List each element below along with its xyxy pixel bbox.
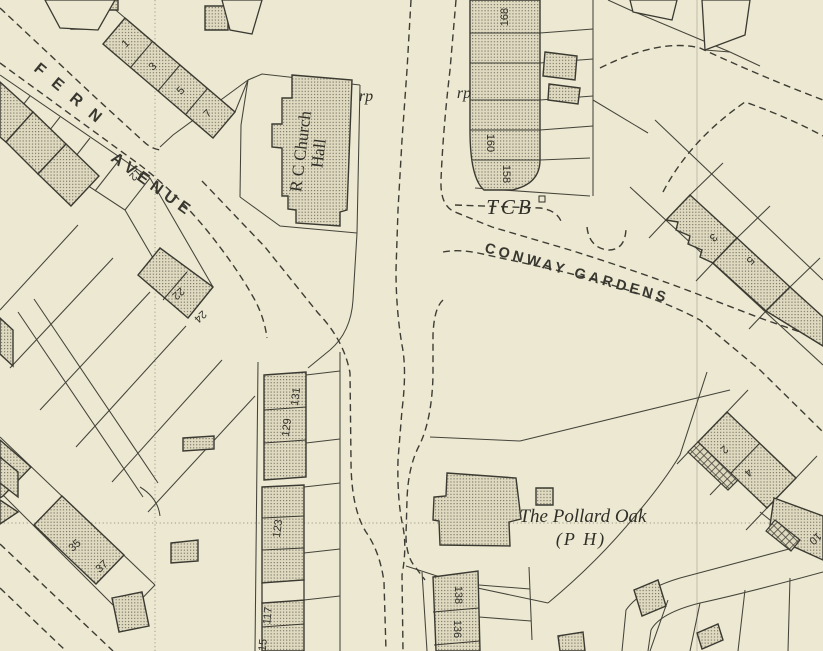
pub-type-label: (P H)	[556, 529, 606, 550]
os-map-sheet: FERN AVENUE CONWAY GARDENS R C Church Ha…	[0, 0, 823, 651]
house-number: 158	[500, 165, 512, 183]
building-terrace-158-168	[470, 0, 540, 190]
pub-name-label: The Pollard Oak	[519, 506, 647, 527]
building-outbuilding	[558, 632, 585, 651]
rp-marker-east: rp	[457, 85, 471, 102]
os-map-canvas: FERN AVENUE CONWAY GARDENS R C Church Ha…	[0, 0, 823, 651]
house-number: 131	[289, 387, 303, 407]
house-number: 123	[271, 519, 285, 539]
house-number: 129	[280, 418, 294, 438]
house-number: 160	[484, 134, 496, 152]
tcb-marker-label: TCB	[486, 195, 534, 219]
building-outbuilding	[536, 488, 553, 505]
paper-background	[0, 0, 823, 651]
house-number: 115	[256, 638, 270, 651]
house-number: 138	[452, 586, 464, 604]
building-outbuilding	[548, 84, 580, 104]
house-number: 117	[261, 606, 275, 625]
house-number: 168	[499, 8, 511, 26]
building-outline	[262, 580, 304, 603]
church-hall-label-line2: Hall	[307, 137, 329, 169]
rp-marker-west: rp	[359, 88, 373, 105]
house-number: 136	[451, 620, 463, 638]
building-outbuilding	[171, 540, 198, 563]
building	[112, 592, 149, 632]
building-pollard-oak-pub	[433, 473, 521, 546]
building-outbuilding	[543, 52, 577, 80]
building-outbuilding	[183, 436, 214, 451]
